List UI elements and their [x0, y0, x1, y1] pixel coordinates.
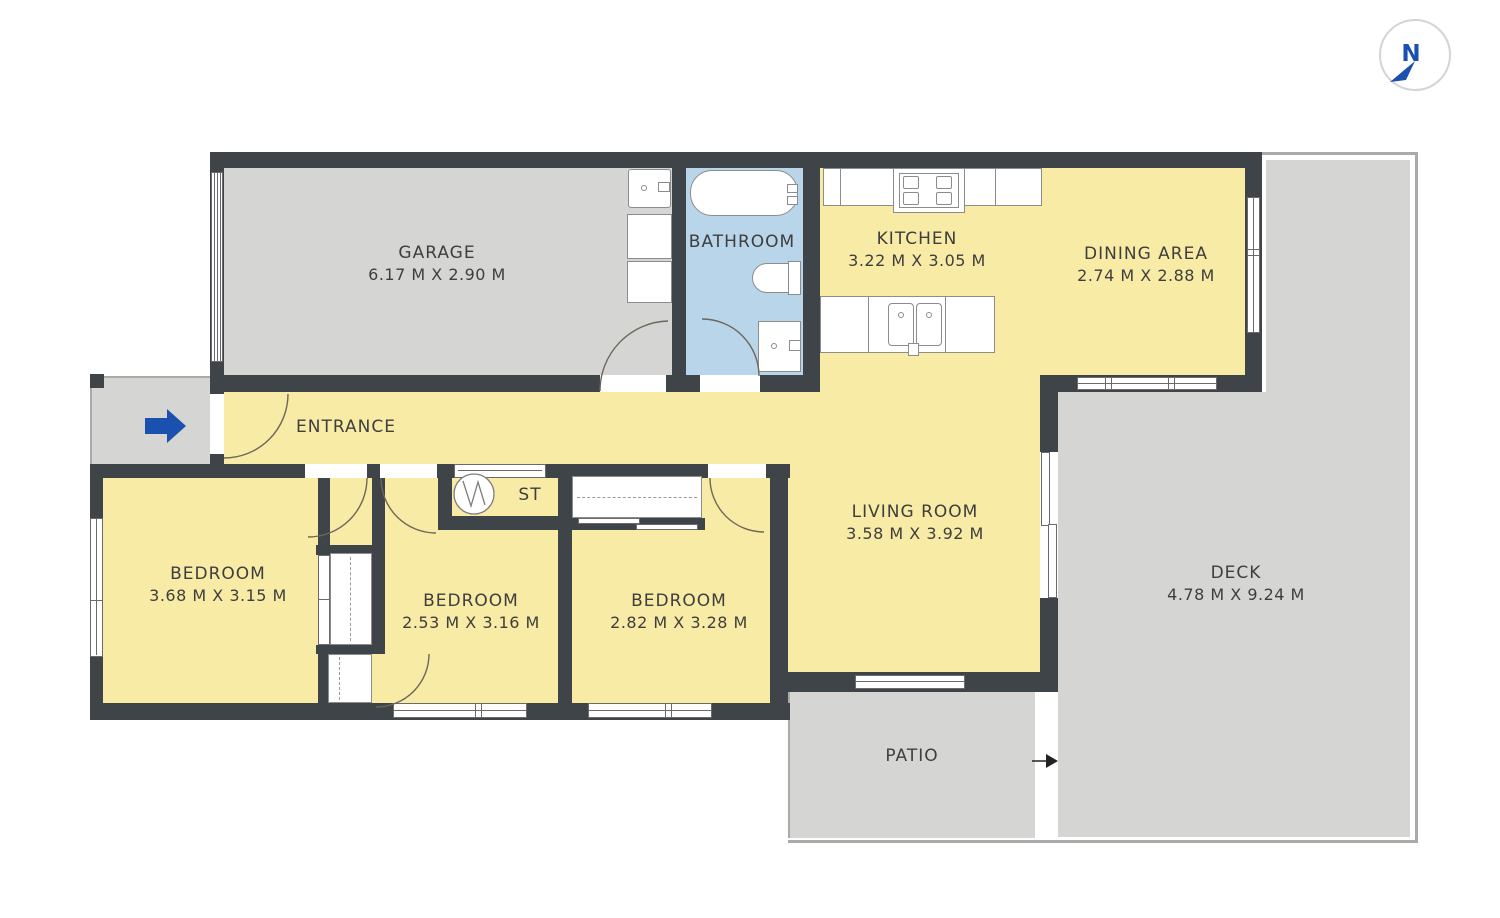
living-sliding-door-panel: [1048, 524, 1057, 598]
entrance-door-opening: [210, 394, 224, 454]
bedroom3-window-divider: [665, 703, 666, 718]
deck-label: DECK 4.78 M X 9.24 M: [1167, 563, 1305, 605]
floor-plan: N GARAGE 6.17 M X 2.90 M BATHROOM KITCHE…: [0, 0, 1500, 918]
stove-burner: [936, 176, 952, 189]
kitchen-counter-divider: [840, 168, 841, 206]
kitchen-living-opening: [820, 375, 1040, 392]
living-window-mullion: [856, 681, 964, 682]
porch-outline-top: [92, 376, 210, 378]
garage-sink-tap: [658, 182, 670, 192]
room-name: DINING AREA: [1077, 244, 1215, 265]
toilet-tank: [788, 261, 801, 295]
wall-bathroom-kitchen: [803, 152, 820, 392]
kitchen-sink-tap: [908, 343, 919, 356]
compass-north-label: N: [1401, 41, 1420, 67]
room-name: ENTRANCE: [296, 417, 396, 438]
garage-entry-door-line: [220, 173, 221, 361]
room-name: BEDROOM: [610, 591, 748, 612]
deck-floor-right: [1266, 160, 1410, 837]
room-name: GARAGE: [368, 243, 506, 264]
wall-living-right-upper: [1040, 392, 1058, 452]
room-name: BEDROOM: [402, 591, 540, 612]
garage-appliance: [627, 261, 672, 303]
kitchen-sink-basin: [916, 303, 942, 346]
room-dimensions: 3.58 M X 3.92 M: [846, 523, 984, 544]
bedroom1-door-opening: [305, 464, 367, 478]
bathroom-door-opening: [700, 375, 760, 392]
stove-burner: [936, 192, 952, 205]
garage-entry-door-line: [217, 173, 218, 361]
storage-label: ST: [518, 485, 541, 506]
dining-bottom-window-divider: [1105, 377, 1106, 390]
wall-closet-left-lower: [318, 654, 328, 703]
room-dimensions: 6.17 M X 2.90 M: [368, 264, 506, 285]
wall-closet-mid: [316, 645, 378, 654]
room-name: LIVING ROOM: [846, 502, 984, 523]
storage-sliding-door-line: [458, 470, 542, 471]
porch-floor: [92, 378, 210, 464]
room-dimensions: 2.74 M X 2.88 M: [1077, 265, 1215, 286]
room-name: ST: [518, 485, 541, 506]
kitchen-island-divider: [945, 296, 946, 353]
garage-entry-door-line: [214, 173, 215, 361]
living-label: LIVING ROOM 3.58 M X 3.92 M: [846, 502, 984, 544]
dining-bottom-window-divider: [1111, 377, 1112, 390]
bedroom3-closet-sliding-panel: [578, 518, 640, 524]
bedroom2-closet-rail: [339, 657, 340, 700]
room-name: BATHROOM: [689, 232, 795, 253]
bedroom3-window-mullion: [589, 710, 711, 711]
bedroom3-door-opening: [708, 464, 766, 478]
bedroom2-window-divider: [481, 703, 482, 718]
porch-outline-left: [90, 376, 92, 466]
bedroom1-label: BEDROOM 3.68 M X 3.15 M: [149, 564, 287, 606]
bedroom3-label: BEDROOM 2.82 M X 3.28 M: [610, 591, 748, 633]
patio-label: PATIO: [885, 746, 938, 767]
garage-label: GARAGE 6.17 M X 2.90 M: [368, 243, 506, 285]
dining-bottom-window-divider: [1174, 377, 1175, 390]
stove-burner: [903, 176, 919, 189]
patio-entry-arrow-icon: [1046, 754, 1058, 768]
bedroom1-window-divider: [90, 600, 103, 601]
bedroom2-door-opening: [380, 464, 437, 478]
kitchen-label: KITCHEN 3.22 M X 3.05 M: [848, 229, 986, 271]
bedroom1-window-mullion: [96, 519, 97, 655]
bathtub: [690, 170, 798, 216]
dining-right-window-mullion: [1253, 198, 1254, 332]
bathtub-tap: [787, 184, 798, 193]
living-sliding-door-panel: [1041, 452, 1050, 526]
wall-bedroom1-bedroom2: [372, 478, 385, 654]
kitchen-sink-basin: [888, 303, 914, 346]
room-name: PATIO: [885, 746, 938, 767]
room-dimensions: 2.53 M X 3.16 M: [402, 612, 540, 633]
bathroom-sink-tap: [789, 340, 801, 351]
wall-bedroom3-right: [770, 464, 788, 720]
room-name: DECK: [1167, 563, 1305, 584]
dining-right-window-divider: [1247, 249, 1260, 250]
wall-bedroom2-bedroom3: [558, 464, 572, 703]
garage-door-opening: [600, 375, 666, 392]
bedroom3-window-divider: [671, 703, 672, 718]
deck-outline-bottom: [788, 840, 1418, 843]
wall-storage-bottom: [438, 516, 572, 530]
north-needle-icon: [1390, 61, 1415, 82]
porch-corner-post: [90, 374, 104, 388]
room-dimensions: 3.68 M X 3.15 M: [149, 585, 287, 606]
wall-bedroom1-right: [318, 478, 330, 555]
dining-bottom-window-divider: [1168, 377, 1169, 390]
wall-garage-bathroom: [672, 152, 686, 392]
kitchen-sink-drain: [926, 312, 932, 318]
room-dimensions: 3.22 M X 3.05 M: [848, 250, 986, 271]
living-window: [855, 675, 965, 689]
bathroom-label: BATHROOM: [689, 232, 795, 253]
bedroom1-closet-door-divider: [318, 599, 330, 600]
wall-top: [210, 152, 1262, 168]
room-dimensions: 4.78 M X 9.24 M: [1167, 584, 1305, 605]
bedroom2-label: BEDROOM 2.53 M X 3.16 M: [402, 591, 540, 633]
kitchen-counter-divider: [995, 168, 996, 206]
stove-burner: [903, 192, 919, 205]
bedroom3-closet-sliding-panel: [636, 524, 698, 530]
bedroom2-closet: [328, 654, 372, 703]
room-name: BEDROOM: [149, 564, 287, 585]
entrance-label: ENTRANCE: [296, 417, 396, 438]
kitchen-island-divider: [868, 296, 869, 353]
storage-sliding-door: [454, 464, 546, 478]
room-dimensions: 2.82 M X 3.28 M: [610, 612, 748, 633]
bedroom1-closet-sliding-door: [318, 555, 330, 645]
dining-bottom-window-mullion: [1078, 383, 1216, 384]
deck-floor-lower: [1058, 392, 1266, 837]
bedroom1-closet: [330, 553, 372, 645]
room-name: KITCHEN: [848, 229, 986, 250]
deck-outline-top: [1262, 152, 1418, 155]
garage-sink-drain: [641, 185, 647, 191]
compass-circle: [1380, 20, 1450, 90]
bedroom3-closet-rail: [577, 497, 697, 498]
dining-right-window-divider: [1247, 255, 1260, 256]
living-floor: [788, 464, 1040, 672]
bedroom1-closet-rail: [350, 557, 351, 641]
dining-label: DINING AREA 2.74 M X 2.88 M: [1077, 244, 1215, 286]
garage-appliance: [627, 214, 672, 259]
bedroom2-window-divider: [475, 703, 476, 718]
bedroom2-window-mullion: [394, 710, 526, 711]
kitchen-sink-drain: [898, 312, 904, 318]
deck-outline-right: [1415, 152, 1418, 843]
bathtub-tap: [787, 196, 798, 205]
bathroom-sink-drain: [771, 343, 777, 349]
